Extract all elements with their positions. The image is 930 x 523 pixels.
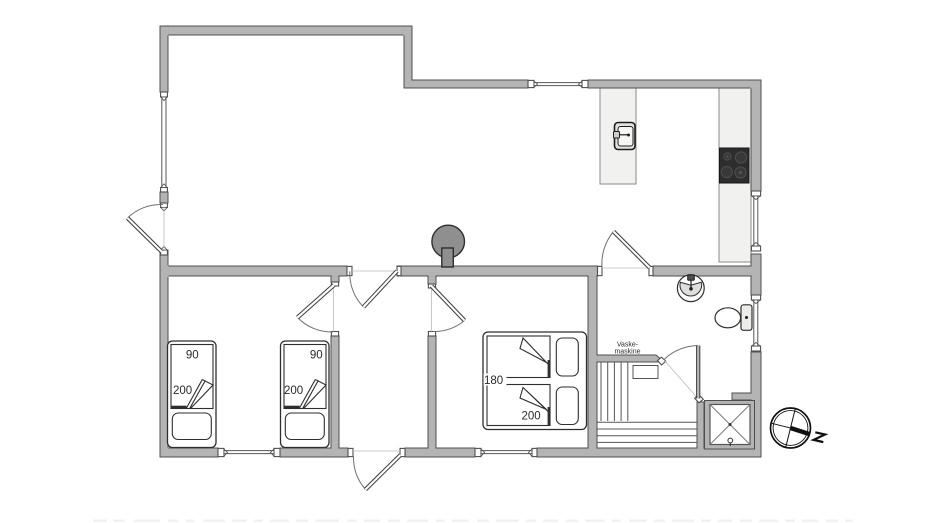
svg-text:180: 180 — [484, 375, 503, 387]
svg-text:90: 90 — [186, 350, 199, 362]
svg-text:Vaske-: Vaske- — [617, 342, 639, 349]
svg-text:200: 200 — [522, 411, 541, 423]
svg-text:90: 90 — [310, 350, 323, 362]
svg-text:maskine: maskine — [614, 349, 640, 356]
svg-text:200: 200 — [284, 385, 303, 397]
svg-text:200: 200 — [173, 385, 192, 397]
